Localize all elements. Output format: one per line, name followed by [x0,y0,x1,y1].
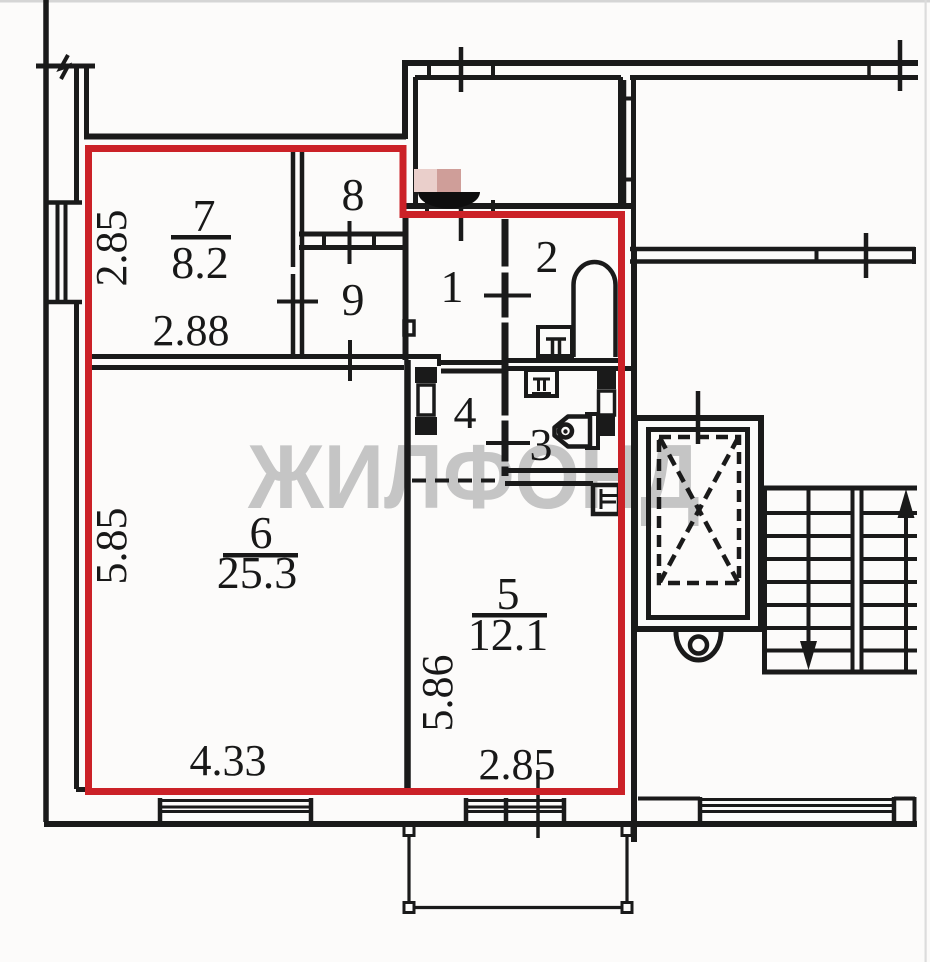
svg-text:25.3: 25.3 [217,547,298,598]
svg-text:5.86: 5.86 [413,655,462,732]
svg-text:2: 2 [536,231,559,282]
svg-text:8: 8 [342,169,365,220]
svg-text:7: 7 [193,190,216,241]
svg-text:9: 9 [342,274,365,325]
svg-text:2.88: 2.88 [153,306,230,355]
svg-text:2.85: 2.85 [479,740,556,789]
svg-text:4: 4 [454,387,477,438]
svg-text:8.2: 8.2 [171,237,229,288]
svg-text:4.33: 4.33 [190,736,267,785]
svg-text:1: 1 [441,261,464,312]
svg-text:12.1: 12.1 [468,609,549,660]
svg-text:5.85: 5.85 [87,508,136,585]
svg-text:3: 3 [530,419,553,470]
svg-text:2.85: 2.85 [87,210,136,287]
